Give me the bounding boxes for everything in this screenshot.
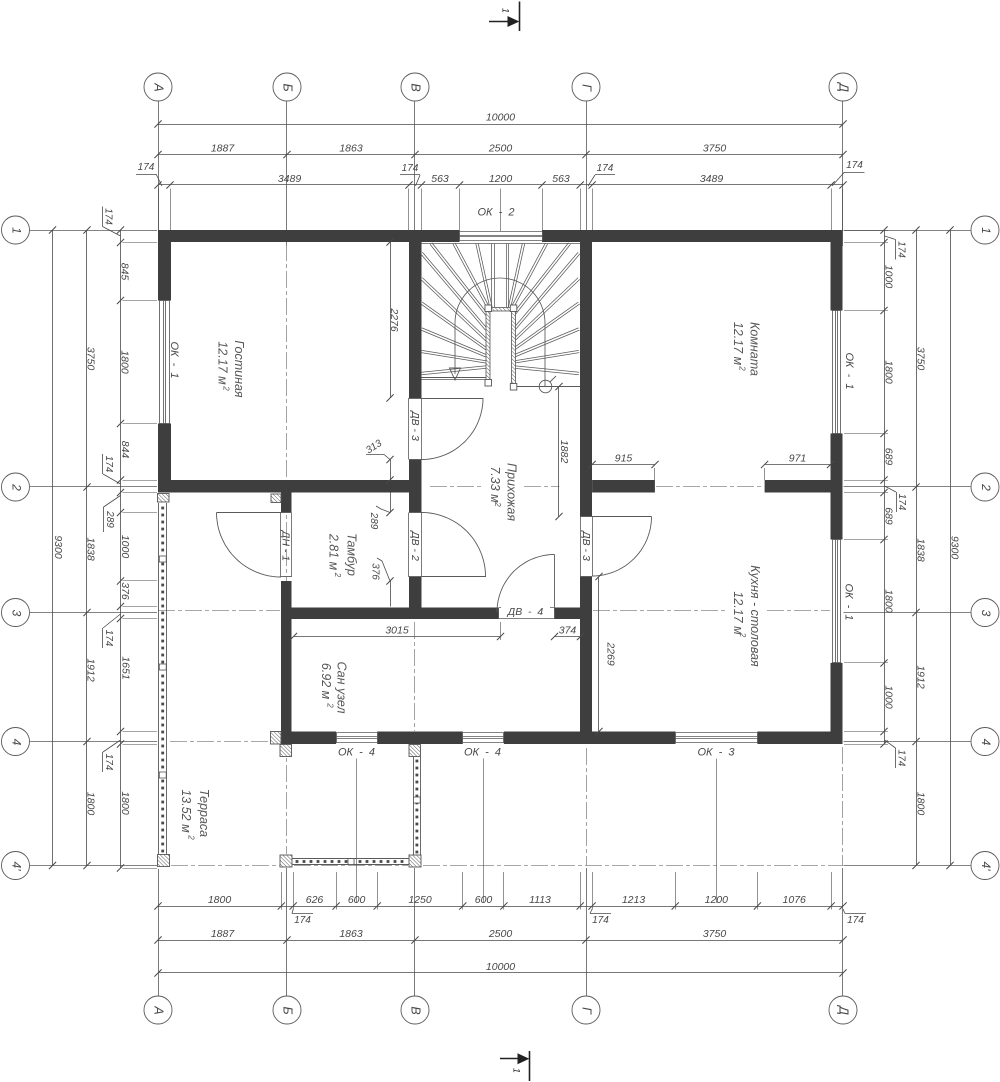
svg-text:174: 174 <box>597 163 614 174</box>
svg-text:1000: 1000 <box>883 685 895 709</box>
svg-text:ОК - 1: ОК - 1 <box>843 583 855 620</box>
svg-text:1863: 1863 <box>339 928 363 940</box>
svg-text:3750: 3750 <box>915 347 927 371</box>
svg-text:3015: 3015 <box>385 624 409 636</box>
svg-text:2: 2 <box>333 572 342 578</box>
svg-text:3: 3 <box>979 610 993 617</box>
svg-text:626: 626 <box>306 894 324 906</box>
svg-text:1: 1 <box>501 8 511 13</box>
svg-text:1882: 1882 <box>558 440 570 464</box>
svg-text:ОК - 1: ОК - 1 <box>168 341 180 378</box>
svg-text:ОК - 1: ОК - 1 <box>843 352 855 389</box>
svg-text:Г: Г <box>580 84 594 92</box>
svg-text:2: 2 <box>186 834 195 840</box>
svg-text:12.17 м: 12.17 м <box>216 341 230 385</box>
svg-text:10000: 10000 <box>486 961 515 973</box>
svg-text:1: 1 <box>512 1068 522 1073</box>
svg-text:1113: 1113 <box>529 894 551 906</box>
svg-text:376: 376 <box>369 563 380 580</box>
svg-text:3489: 3489 <box>700 173 724 185</box>
svg-text:1800: 1800 <box>85 792 97 816</box>
svg-text:2269: 2269 <box>605 641 617 666</box>
svg-text:12.17 м: 12.17 м <box>731 591 745 635</box>
svg-text:915: 915 <box>615 452 633 464</box>
svg-text:6.92 м: 6.92 м <box>319 663 333 700</box>
svg-text:1200: 1200 <box>489 173 513 185</box>
svg-text:971: 971 <box>789 452 807 464</box>
svg-text:1887: 1887 <box>211 142 236 154</box>
svg-text:1800: 1800 <box>208 894 232 906</box>
svg-text:1800: 1800 <box>119 791 131 815</box>
svg-text:9300: 9300 <box>52 535 64 559</box>
svg-text:2: 2 <box>738 632 747 638</box>
svg-text:289: 289 <box>104 510 115 528</box>
svg-text:2500: 2500 <box>488 142 513 154</box>
svg-text:174: 174 <box>138 162 155 173</box>
svg-text:1912: 1912 <box>915 665 927 689</box>
svg-text:1912: 1912 <box>85 658 97 682</box>
svg-text:ДВ - 2: ДВ - 2 <box>409 530 421 561</box>
svg-text:Б: Б <box>281 1006 295 1014</box>
svg-text:1000: 1000 <box>119 535 131 559</box>
svg-text:Тамбур: Тамбур <box>345 533 359 576</box>
svg-text:174: 174 <box>102 208 113 225</box>
svg-text:289: 289 <box>368 512 379 530</box>
svg-text:2.81 м: 2.81 м <box>327 533 341 571</box>
svg-text:174: 174 <box>895 241 906 258</box>
svg-text:2500: 2500 <box>488 928 513 940</box>
svg-text:1800: 1800 <box>915 792 927 816</box>
svg-text:1: 1 <box>9 227 23 234</box>
svg-text:Прихожая: Прихожая <box>505 463 519 521</box>
svg-text:689: 689 <box>883 448 895 466</box>
svg-text:ДВ - 3: ДВ - 3 <box>580 530 592 561</box>
svg-text:2: 2 <box>221 385 230 391</box>
svg-text:3750: 3750 <box>703 928 727 940</box>
svg-text:844: 844 <box>119 441 131 459</box>
svg-text:Д: Д <box>837 81 851 92</box>
svg-text:4': 4' <box>979 862 993 872</box>
svg-text:ОК - 4: ОК - 4 <box>464 746 501 758</box>
svg-text:1800: 1800 <box>883 589 895 613</box>
svg-text:174: 174 <box>402 163 419 174</box>
svg-text:Терраса: Терраса <box>197 789 211 837</box>
svg-text:1838: 1838 <box>85 537 97 561</box>
svg-text:374: 374 <box>559 624 577 636</box>
svg-text:689: 689 <box>883 507 895 525</box>
svg-text:4: 4 <box>979 739 993 746</box>
svg-text:1: 1 <box>979 227 993 234</box>
svg-text:1863: 1863 <box>339 142 363 154</box>
svg-text:Д: Д <box>837 1004 851 1015</box>
svg-text:4': 4' <box>9 862 23 872</box>
svg-text:ДВ - 3: ДВ - 3 <box>409 410 421 441</box>
svg-text:174: 174 <box>896 494 907 511</box>
svg-text:Г: Г <box>580 1007 594 1015</box>
svg-text:ОК - 4: ОК - 4 <box>338 746 375 758</box>
svg-text:Кухня - столовая: Кухня - столовая <box>748 565 762 667</box>
svg-text:845: 845 <box>119 263 131 281</box>
svg-text:2: 2 <box>9 483 23 491</box>
svg-text:1800: 1800 <box>119 350 131 374</box>
svg-text:174: 174 <box>847 915 864 926</box>
svg-text:174: 174 <box>592 915 609 926</box>
svg-text:3489: 3489 <box>278 173 302 185</box>
svg-text:563: 563 <box>552 173 570 185</box>
svg-text:3: 3 <box>9 610 23 617</box>
svg-text:Сан узел: Сан узел <box>335 662 349 714</box>
svg-text:2: 2 <box>979 483 993 491</box>
svg-text:174: 174 <box>103 630 114 647</box>
svg-text:1250: 1250 <box>408 894 432 906</box>
svg-text:В: В <box>409 1006 423 1014</box>
svg-text:3750: 3750 <box>85 347 97 371</box>
svg-text:ОК - 2: ОК - 2 <box>477 206 514 218</box>
svg-text:376: 376 <box>119 582 131 600</box>
svg-text:В: В <box>409 83 423 91</box>
svg-text:174: 174 <box>103 754 114 771</box>
svg-text:1887: 1887 <box>211 928 236 940</box>
svg-text:10000: 10000 <box>486 111 515 123</box>
svg-text:ДН - 1: ДН - 1 <box>280 530 292 561</box>
svg-text:1000: 1000 <box>883 265 895 289</box>
svg-text:Б: Б <box>281 83 295 91</box>
svg-text:174: 174 <box>846 160 863 171</box>
svg-text:13.52 м: 13.52 м <box>179 789 193 833</box>
svg-text:1076: 1076 <box>783 894 807 906</box>
svg-text:ОК - 3: ОК - 3 <box>697 746 735 758</box>
svg-text:2276: 2276 <box>388 307 400 332</box>
svg-text:9300: 9300 <box>949 536 961 560</box>
svg-text:2: 2 <box>493 501 502 507</box>
svg-text:2: 2 <box>325 702 334 708</box>
svg-text:174: 174 <box>895 750 906 767</box>
svg-text:1213: 1213 <box>622 894 646 906</box>
svg-text:Комната: Комната <box>748 322 762 376</box>
svg-text:1651: 1651 <box>120 656 132 679</box>
svg-text:7.33 м: 7.33 м <box>488 466 502 503</box>
svg-text:12.17 м: 12.17 м <box>731 322 745 366</box>
svg-text:1800: 1800 <box>883 360 895 384</box>
svg-text:563: 563 <box>431 173 449 185</box>
svg-text:ДВ - 4: ДВ - 4 <box>507 606 544 618</box>
svg-text:А: А <box>152 82 166 91</box>
svg-text:174: 174 <box>103 456 114 473</box>
svg-text:2: 2 <box>737 365 746 371</box>
svg-text:А: А <box>152 1005 166 1014</box>
svg-text:174: 174 <box>294 915 311 926</box>
svg-text:Гостиная: Гостиная <box>232 340 246 397</box>
svg-text:3750: 3750 <box>703 142 727 154</box>
svg-text:1838: 1838 <box>915 538 927 562</box>
svg-text:4: 4 <box>9 739 23 746</box>
